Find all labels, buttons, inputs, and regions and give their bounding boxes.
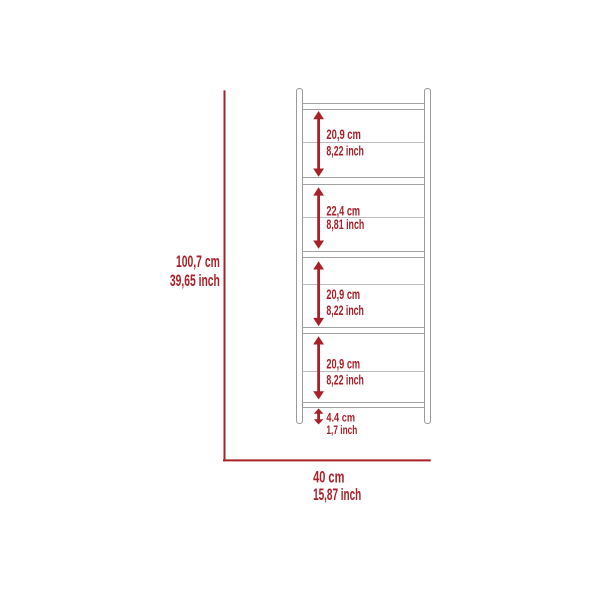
- svg-text:20,9 cm: 20,9 cm: [326, 356, 360, 372]
- svg-text:8,22 inch: 8,22 inch: [326, 302, 364, 318]
- svg-text:1,7 inch: 1,7 inch: [326, 423, 357, 437]
- svg-text:8,81 inch: 8,81 inch: [326, 216, 364, 232]
- svg-text:8,22 inch: 8,22 inch: [326, 371, 364, 387]
- svg-text:15,87 inch: 15,87 inch: [313, 485, 361, 504]
- svg-text:20,9 cm: 20,9 cm: [326, 286, 360, 302]
- svg-text:8,22 inch: 8,22 inch: [326, 143, 364, 159]
- svg-text:40 cm: 40 cm: [313, 468, 344, 487]
- svg-text:100,7 cm: 100,7 cm: [176, 252, 220, 271]
- svg-text:39,65 inch: 39,65 inch: [170, 271, 220, 290]
- svg-text:20,9 cm: 20,9 cm: [326, 126, 361, 142]
